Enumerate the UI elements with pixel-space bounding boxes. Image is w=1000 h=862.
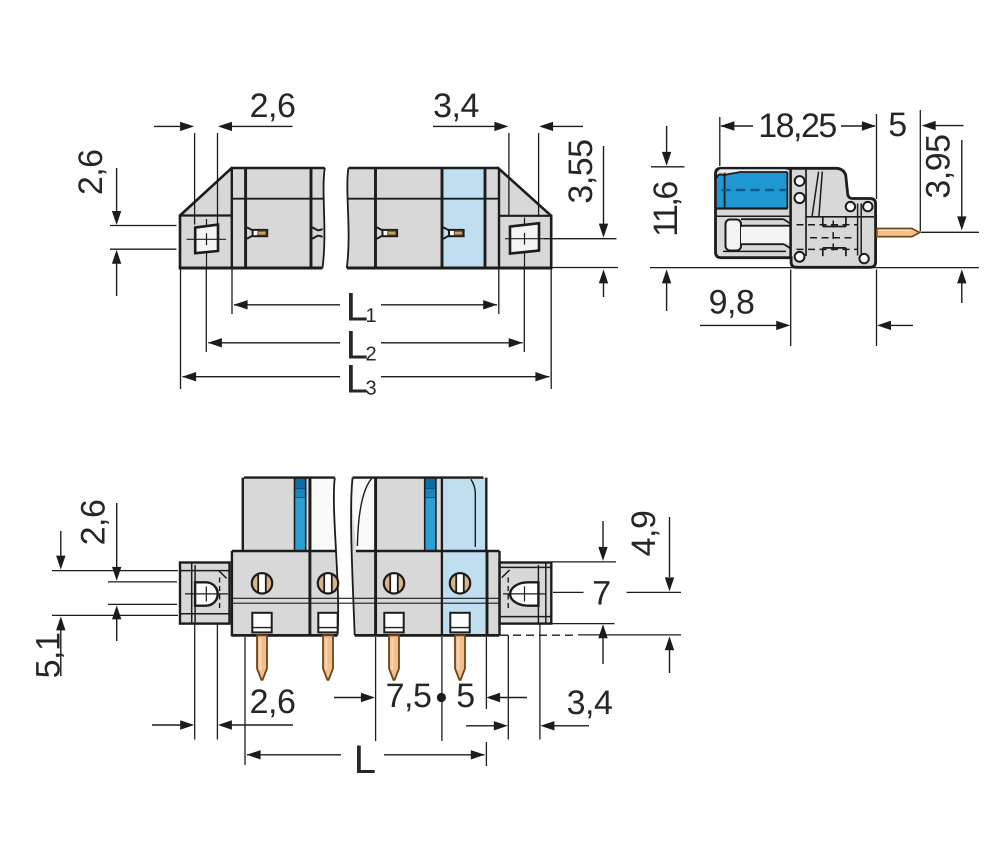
svg-text:5,1: 5,1 xyxy=(30,633,68,679)
svg-text:5: 5 xyxy=(456,677,474,715)
svg-text:3,55: 3,55 xyxy=(562,139,600,203)
svg-text:2,6: 2,6 xyxy=(75,500,113,546)
svg-text:2,6: 2,6 xyxy=(250,683,296,721)
svg-text:7,5: 7,5 xyxy=(386,677,432,715)
svg-text:7: 7 xyxy=(592,575,610,613)
svg-text:18,25: 18,25 xyxy=(758,107,836,145)
svg-text:9,8: 9,8 xyxy=(709,284,755,322)
svg-text:2,6: 2,6 xyxy=(72,149,110,195)
svg-text:11,6: 11,6 xyxy=(647,182,685,237)
svg-text:3,4: 3,4 xyxy=(567,684,613,722)
svg-text:2,6: 2,6 xyxy=(250,87,296,125)
svg-text:4,9: 4,9 xyxy=(625,511,663,557)
svg-text:3: 3 xyxy=(366,377,377,399)
svg-text:3,95: 3,95 xyxy=(920,134,958,198)
svg-text:L: L xyxy=(354,738,376,782)
svg-text:5: 5 xyxy=(888,106,906,144)
svg-text:3,4: 3,4 xyxy=(433,87,479,125)
